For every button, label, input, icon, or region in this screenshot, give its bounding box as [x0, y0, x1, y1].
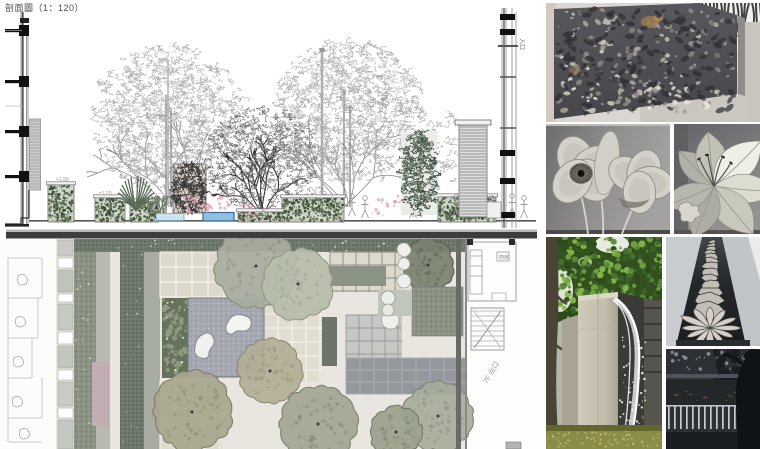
- svg-text:入口: 入口: [518, 38, 525, 50]
- svg-text:廚房: 廚房: [499, 254, 509, 261]
- svg-text:+1.80: +1.80: [56, 177, 69, 183]
- svg-text:±1.20: ±1.20: [99, 191, 112, 197]
- svg-text:剖面圖（1：120）: 剖面圖（1：120）: [5, 2, 84, 13]
